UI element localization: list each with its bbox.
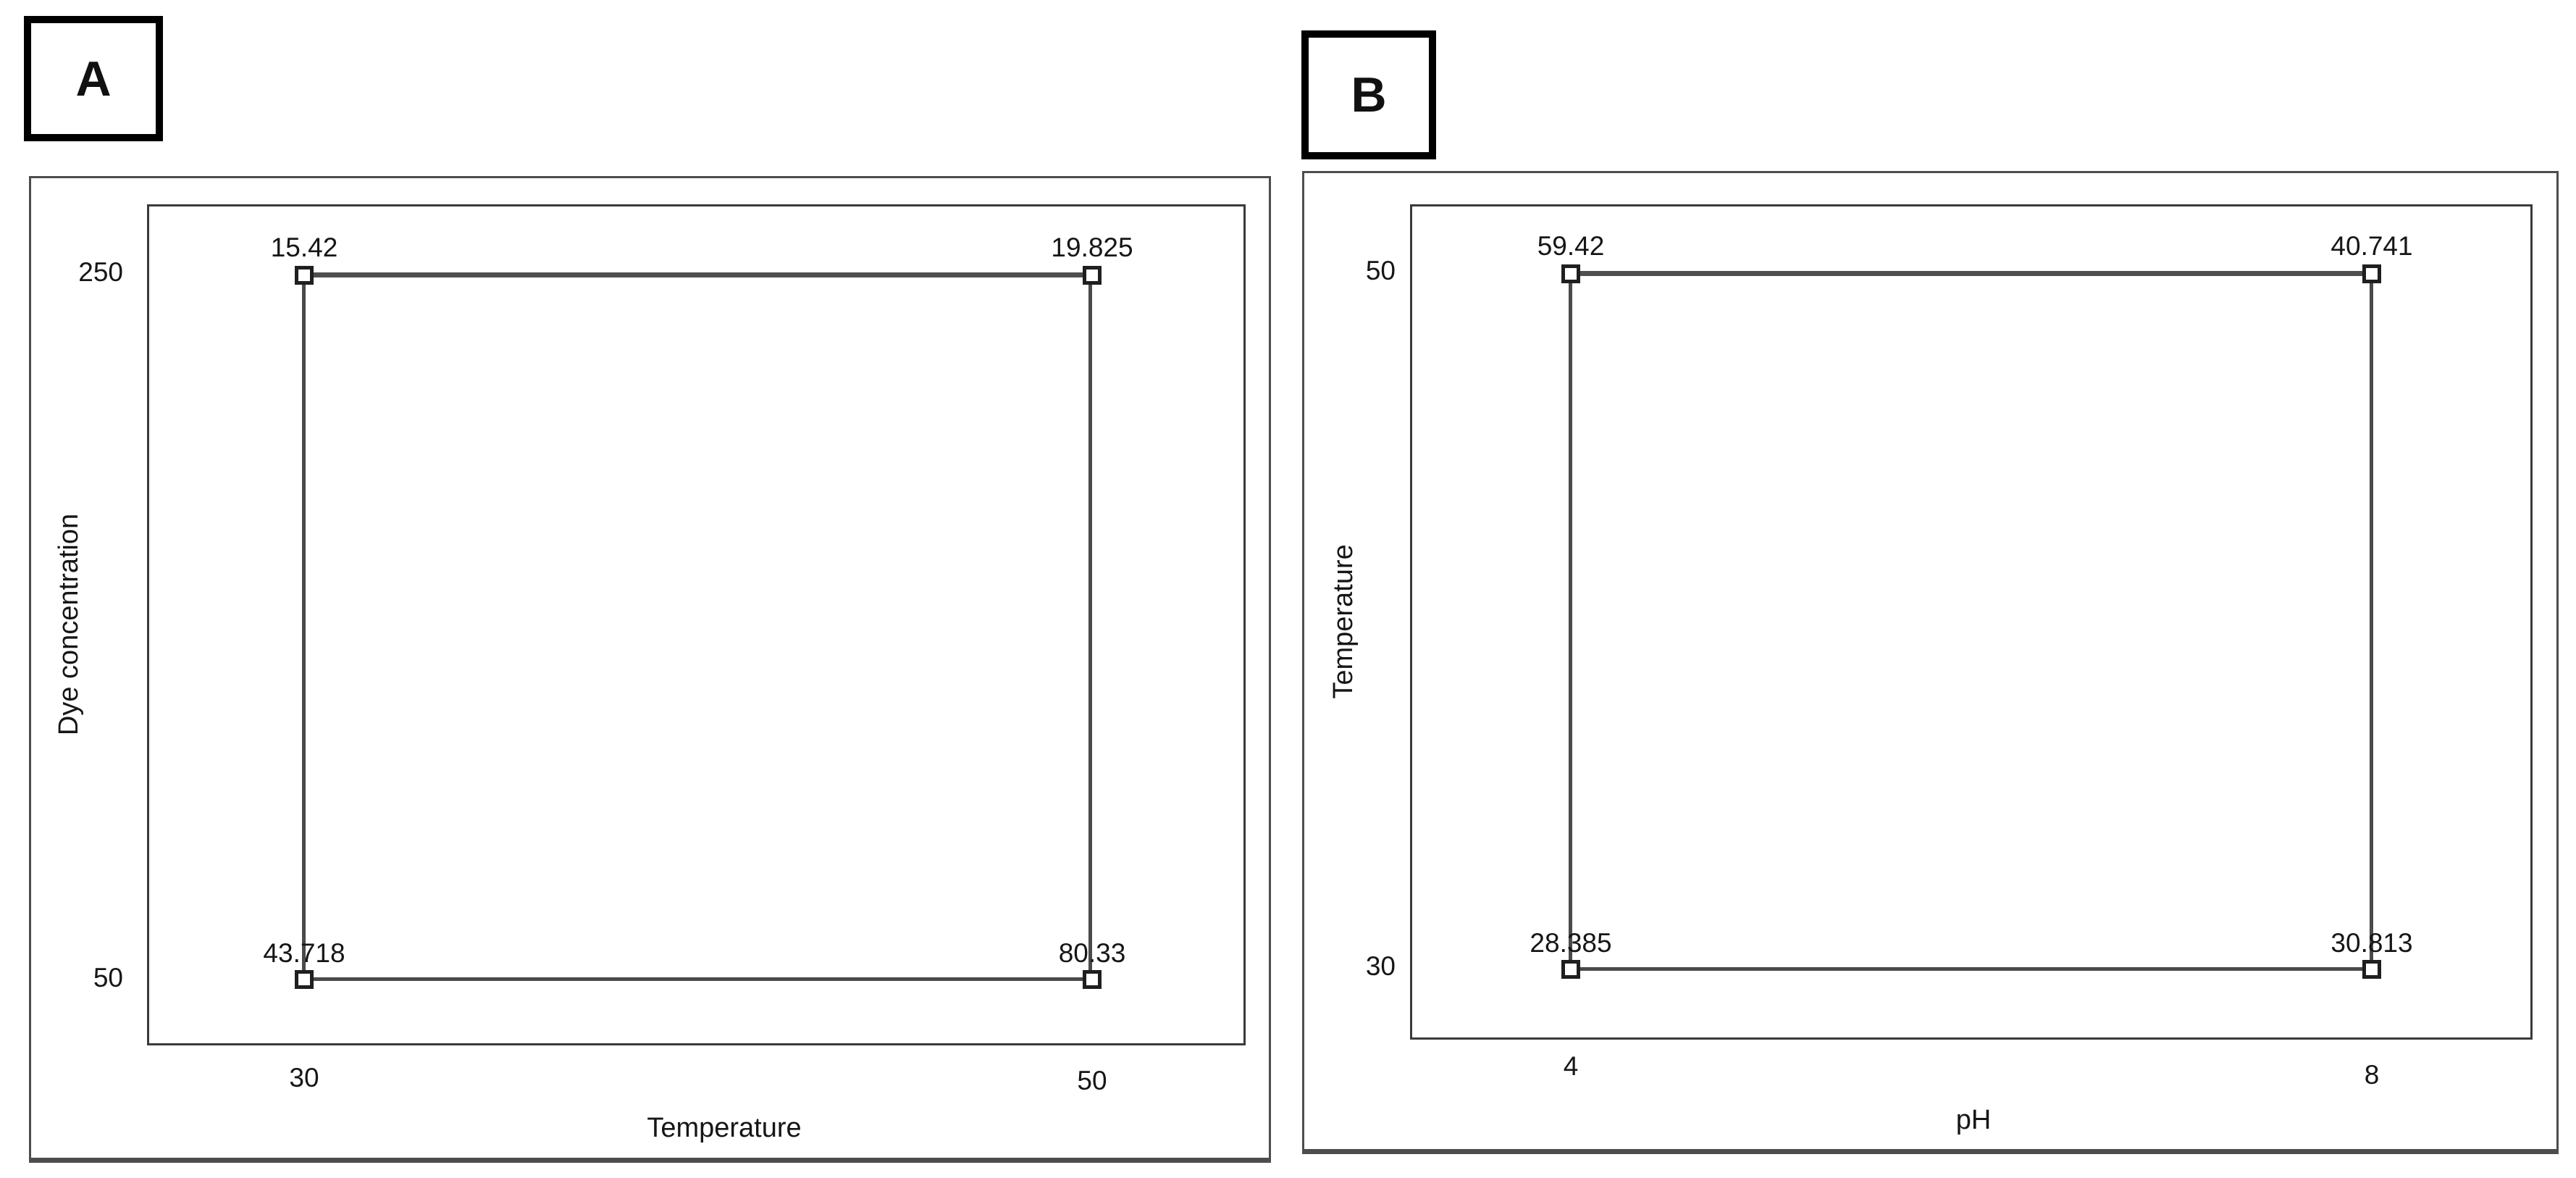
panel-a-ytick-bottom: 50 xyxy=(0,964,123,993)
panel-b-square-edge-bottom xyxy=(1571,967,2372,971)
panel-a-xtick-right: 50 xyxy=(1077,1066,1107,1095)
panel-a-label-box: A xyxy=(24,16,163,141)
panel-a-value-top-right: 19.825 xyxy=(1051,233,1133,262)
panel-b-value-bottom-right: 30.813 xyxy=(2330,929,2412,958)
panel-a-square-edge-bottom xyxy=(304,977,1092,981)
panel-a-square-edge-top xyxy=(304,272,1092,277)
panel-a-square-edge-right xyxy=(1088,275,1092,979)
panel-a-marker-bottom-right xyxy=(1083,970,1102,989)
panel-a-y-axis-title: Dye concentration xyxy=(54,514,84,735)
panel-a-value-top-left: 15.42 xyxy=(271,233,338,262)
panel-a-ytick-top: 250 xyxy=(0,258,123,287)
panel-b-marker-top-left xyxy=(1561,264,1580,283)
panel-b-square-edge-right xyxy=(2370,274,2373,969)
panel-b-ytick-bottom: 30 xyxy=(1251,952,1396,981)
panel-b-marker-bottom-right xyxy=(2362,960,2381,979)
panel-b-marker-bottom-left xyxy=(1561,960,1580,979)
panel-b-label: B xyxy=(1351,67,1386,123)
panel-b-xtick-left: 4 xyxy=(1564,1052,1579,1081)
panel-b-value-top-right: 40.741 xyxy=(2330,232,2412,261)
panel-a-marker-top-left xyxy=(295,266,314,285)
panel-b-square-edge-left xyxy=(1569,274,1572,969)
panel-b-square-edge-top xyxy=(1571,271,2372,276)
panel-b-value-bottom-left: 28.385 xyxy=(1530,929,1611,958)
figure-canvas: A 15.42 19.825 43.718 80.33 250 50 30 50… xyxy=(0,0,2576,1178)
panel-a-marker-bottom-left xyxy=(295,970,314,989)
panel-a-xtick-left: 30 xyxy=(289,1064,319,1093)
panel-a-square-edge-left xyxy=(302,275,306,979)
panel-a-value-bottom-left: 43.718 xyxy=(263,939,345,968)
panel-b-marker-top-right xyxy=(2362,264,2381,283)
panel-b-label-box: B xyxy=(1301,30,1436,159)
panel-a-label: A xyxy=(75,51,111,107)
panel-a-value-bottom-right: 80.33 xyxy=(1059,939,1126,968)
panel-b-value-top-left: 59.42 xyxy=(1537,232,1605,261)
panel-b-x-axis-title: pH xyxy=(1956,1105,1992,1135)
panel-b-ytick-top: 50 xyxy=(1251,256,1396,285)
panel-b-y-axis-title: Temperature xyxy=(1328,544,1359,698)
panel-b-plot-frame xyxy=(1410,204,2533,1040)
panel-a-x-axis-title: Temperature xyxy=(647,1113,801,1143)
panel-a-plot-frame xyxy=(147,204,1246,1045)
panel-b-xtick-right: 8 xyxy=(2365,1061,2380,1090)
panel-a-marker-top-right xyxy=(1083,266,1102,285)
